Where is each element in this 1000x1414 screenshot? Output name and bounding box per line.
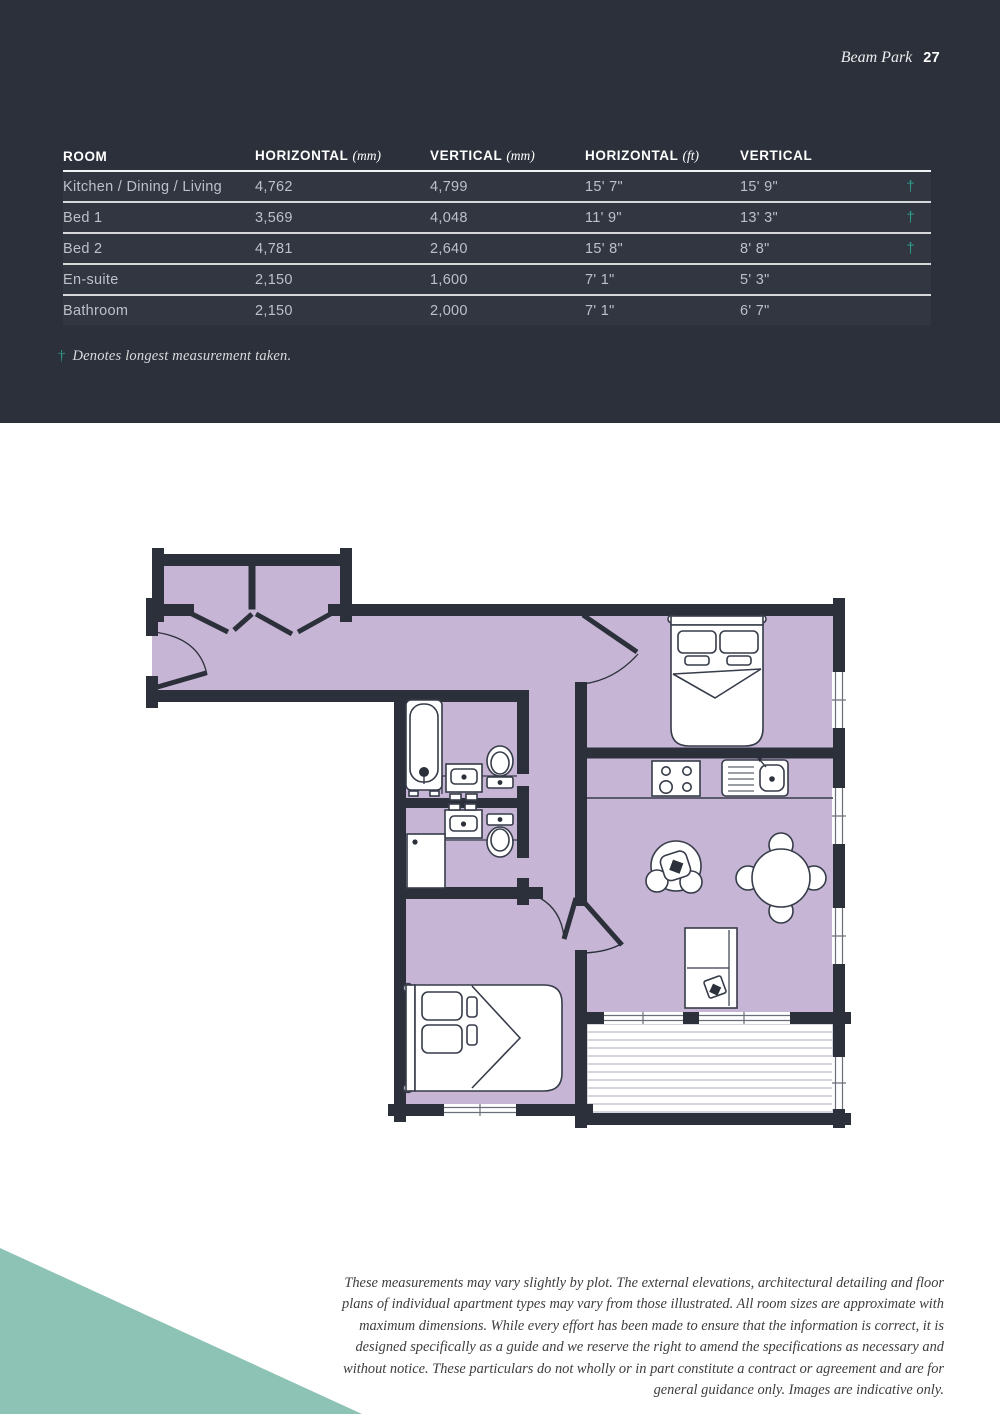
brand-header: Beam Park 27 [841, 49, 940, 67]
horizontal-ft: 15' 8" [585, 241, 740, 257]
vertical-mm: 4,048 [430, 210, 585, 226]
corner-triangle-graphic [0, 1248, 362, 1414]
apartment-floor-plan [140, 548, 860, 1128]
header-block: Beam Park 27 ROOM HORIZONTAL(mm) VERTICA… [0, 0, 1000, 423]
room-name: Bathroom [63, 303, 255, 319]
column-header-horizontal-ft: HORIZONTAL(ft) [585, 148, 740, 164]
horizontal-ft: 7' 1" [585, 303, 740, 319]
sofa-icon [685, 928, 737, 1008]
table-row: En-suite 2,150 1,600 7' 1" 5' 3" [63, 265, 931, 296]
vertical-mm: 2,640 [430, 241, 585, 257]
column-header-vertical-mm: VERTICAL(mm) [430, 148, 585, 164]
decking [587, 1024, 833, 1117]
room-name: Bed 1 [63, 210, 255, 226]
shower-icon [407, 834, 445, 888]
table-row: Kitchen / Dining / Living 4,762 4,799 15… [63, 172, 931, 203]
bed2-icon [404, 984, 563, 1093]
vertical-mm: 4,799 [430, 179, 585, 195]
bath-icon [406, 700, 442, 796]
horizontal-mm: 3,569 [255, 210, 430, 226]
horizontal-mm: 4,762 [255, 179, 430, 195]
dagger-symbol: † [58, 348, 65, 364]
table-row: Bed 2 4,781 2,640 15' 8" 8' 8" † [63, 234, 931, 265]
table-row: Bed 1 3,569 4,048 11' 9" 13' 3" † [63, 203, 931, 234]
page-number: 27 [923, 50, 940, 66]
vertical-ft: 6' 7" [740, 303, 870, 319]
brand-name: Beam Park [841, 49, 913, 67]
dagger-marker: † [870, 209, 931, 226]
horizontal-mm: 4,781 [255, 241, 430, 257]
vertical-mm: 2,000 [430, 303, 585, 319]
horizontal-ft: 7' 1" [585, 272, 740, 288]
vertical-ft: 15' 9" [740, 179, 870, 195]
column-header-horizontal-mm: HORIZONTAL(mm) [255, 148, 430, 164]
bed1-icon [668, 615, 766, 746]
disclaimer-text: These measurements may vary slightly by … [326, 1273, 944, 1401]
room-dimensions-table: ROOM HORIZONTAL(mm) VERTICAL(mm) HORIZON… [63, 142, 931, 325]
table-footnote: †Denotes longest measurement taken. [58, 348, 291, 365]
ensuite-toilet-icon [487, 814, 513, 857]
table-row: Bathroom 2,150 2,000 7' 1" 6' 7" [63, 296, 931, 325]
kitchen-sink-icon [722, 756, 788, 796]
dagger-marker: † [870, 178, 931, 195]
table-header-row: ROOM HORIZONTAL(mm) VERTICAL(mm) HORIZON… [63, 142, 931, 172]
horizontal-ft: 11' 9" [585, 210, 740, 226]
brochure-page: Beam Park 27 ROOM HORIZONTAL(mm) VERTICA… [0, 0, 1000, 1414]
horizontal-ft: 15' 7" [585, 179, 740, 195]
horizontal-mm: 2,150 [255, 303, 430, 319]
column-header-room: ROOM [63, 149, 255, 164]
room-name: En-suite [63, 272, 255, 288]
vertical-ft: 5' 3" [740, 272, 870, 288]
room-name: Kitchen / Dining / Living [63, 179, 255, 195]
vertical-ft: 13' 3" [740, 210, 870, 226]
dagger-marker: † [870, 240, 931, 257]
room-name: Bed 2 [63, 241, 255, 257]
toilet-icon [487, 746, 513, 788]
horizontal-mm: 2,150 [255, 272, 430, 288]
column-header-vertical-ft: VERTICAL [740, 148, 870, 164]
hob-icon [652, 761, 700, 796]
table-body: Kitchen / Dining / Living 4,762 4,799 15… [63, 172, 931, 325]
vertical-ft: 8' 8" [740, 241, 870, 257]
vertical-mm: 1,600 [430, 272, 585, 288]
